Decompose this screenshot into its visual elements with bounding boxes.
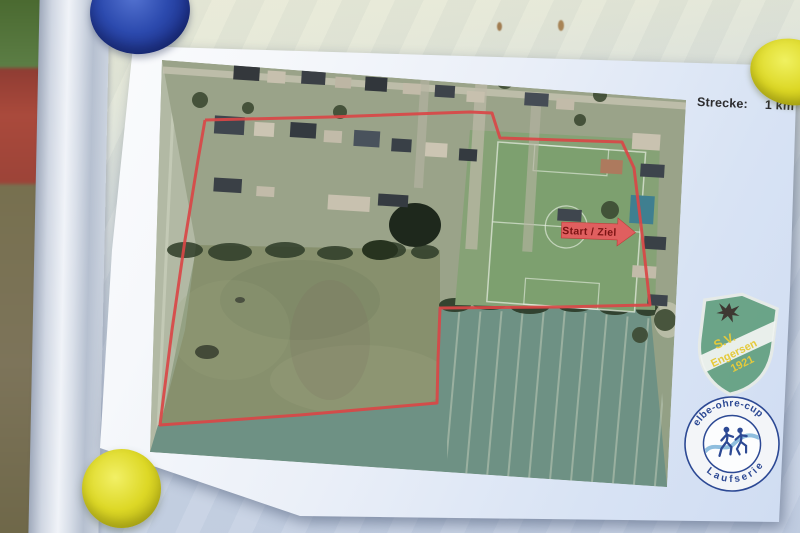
distance-label: Strecke:: [697, 95, 748, 111]
dark-copse: [389, 203, 441, 247]
teal-roof-building: [629, 195, 655, 224]
cup-badge-logo: elbe-ohre-cup Laufserie: [676, 388, 789, 501]
rust-spot: [497, 22, 502, 31]
bulletin-board-photo: Start / Ziel Strecke: 1 km S.V. Engersen…: [0, 0, 800, 533]
start-finish-label: Start / Ziel: [562, 225, 617, 239]
rust-spot: [558, 20, 564, 31]
magnet-yellow-bottom-left: [82, 449, 161, 528]
club-shield-logo: S.V. Engersen 1921: [686, 286, 787, 404]
